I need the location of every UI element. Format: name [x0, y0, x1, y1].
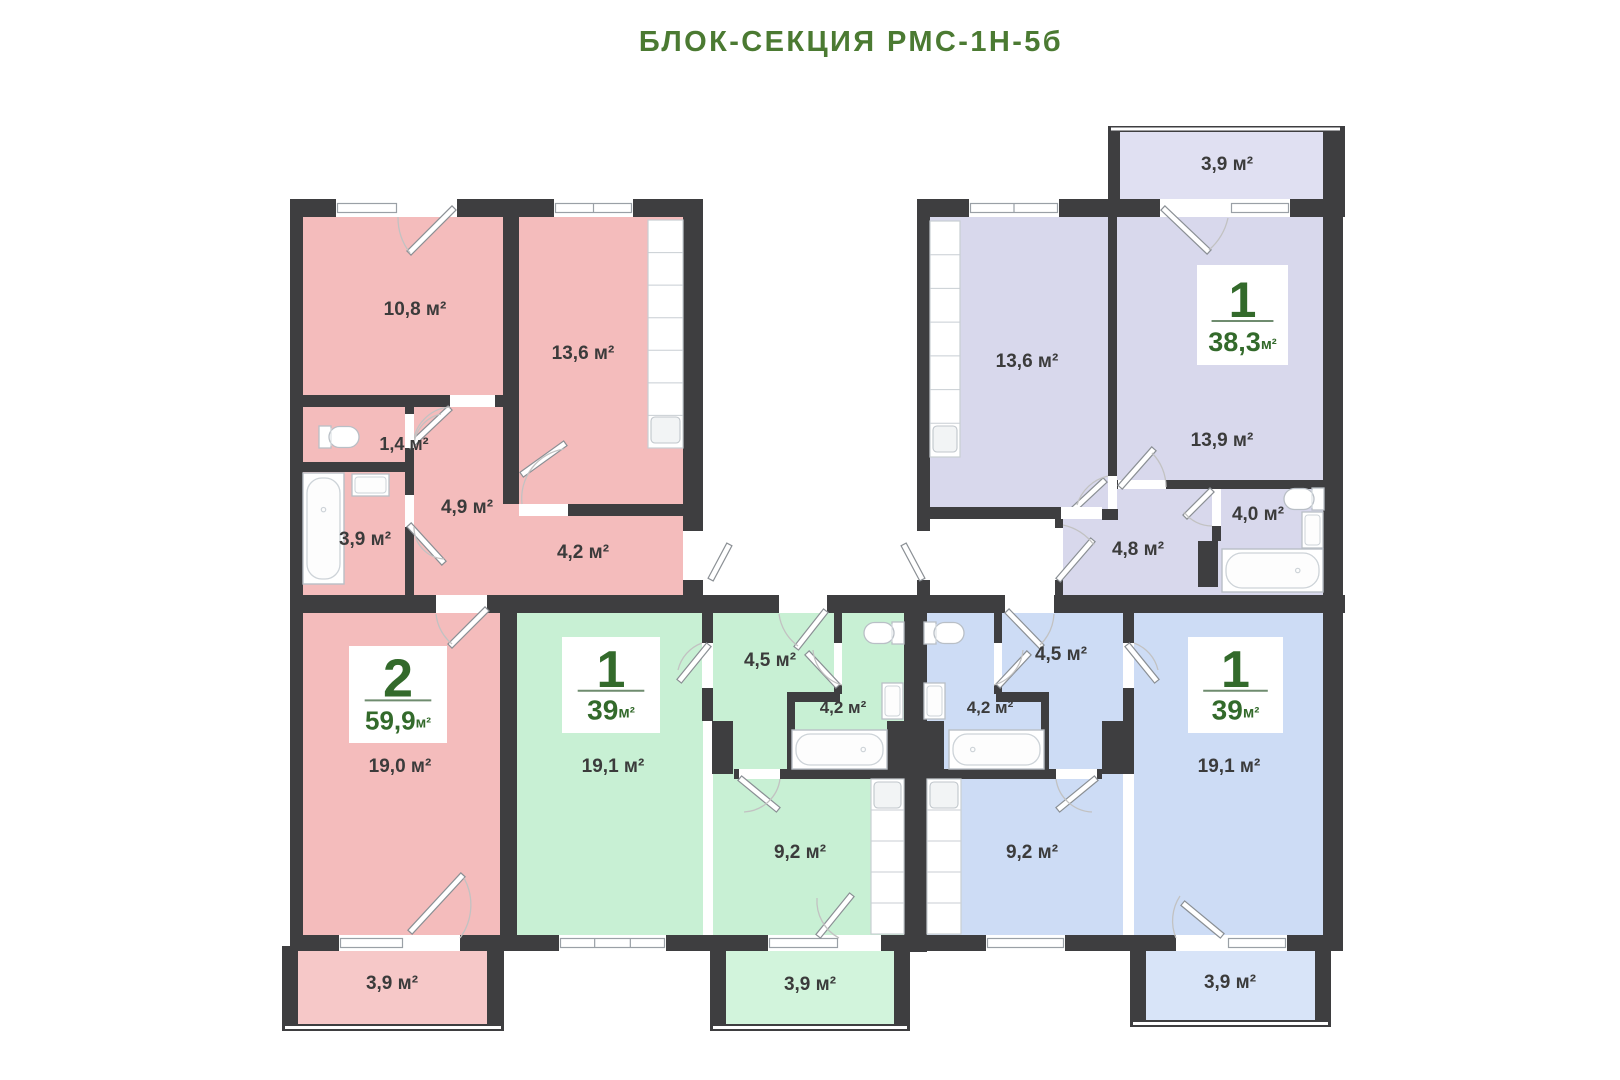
svg-text:13,6 м²: 13,6 м² — [552, 343, 615, 364]
svg-text:9,2 м²: 9,2 м² — [1006, 842, 1058, 863]
svg-text:10,8 м²: 10,8 м² — [384, 299, 447, 320]
svg-text:1,4 м²: 1,4 м² — [379, 434, 428, 454]
svg-text:4,5 м²: 4,5 м² — [744, 650, 796, 671]
svg-text:19,0 м²: 19,0 м² — [369, 756, 432, 777]
svg-text:19,1 м²: 19,1 м² — [582, 756, 645, 777]
svg-text:9,2 м²: 9,2 м² — [774, 842, 826, 863]
svg-text:3,9 м²: 3,9 м² — [339, 529, 391, 550]
svg-text:4,2 м²: 4,2 м² — [820, 698, 867, 717]
svg-text:4,2 м²: 4,2 м² — [557, 542, 609, 563]
svg-text:19,1 м²: 19,1 м² — [1198, 756, 1261, 777]
svg-text:4,5 м²: 4,5 м² — [1035, 644, 1087, 665]
svg-text:4,2 м²: 4,2 м² — [967, 698, 1014, 717]
svg-text:3,9 м²: 3,9 м² — [366, 973, 418, 994]
svg-text:4,9 м²: 4,9 м² — [441, 497, 493, 518]
svg-text:13,6 м²: 13,6 м² — [996, 351, 1059, 372]
svg-text:1: 1 — [1229, 272, 1257, 328]
svg-text:4,0 м²: 4,0 м² — [1232, 504, 1284, 525]
svg-text:13,9 м²: 13,9 м² — [1191, 430, 1254, 451]
svg-text:4,8 м²: 4,8 м² — [1112, 539, 1164, 560]
svg-text:БЛОК-СЕКЦИЯ РМС-1Н-5б: БЛОК-СЕКЦИЯ РМС-1Н-5б — [639, 26, 1063, 58]
svg-text:3,9 м²: 3,9 м² — [1201, 154, 1253, 175]
svg-text:3,9 м²: 3,9 м² — [784, 974, 836, 995]
svg-text:3,9 м²: 3,9 м² — [1204, 972, 1256, 993]
